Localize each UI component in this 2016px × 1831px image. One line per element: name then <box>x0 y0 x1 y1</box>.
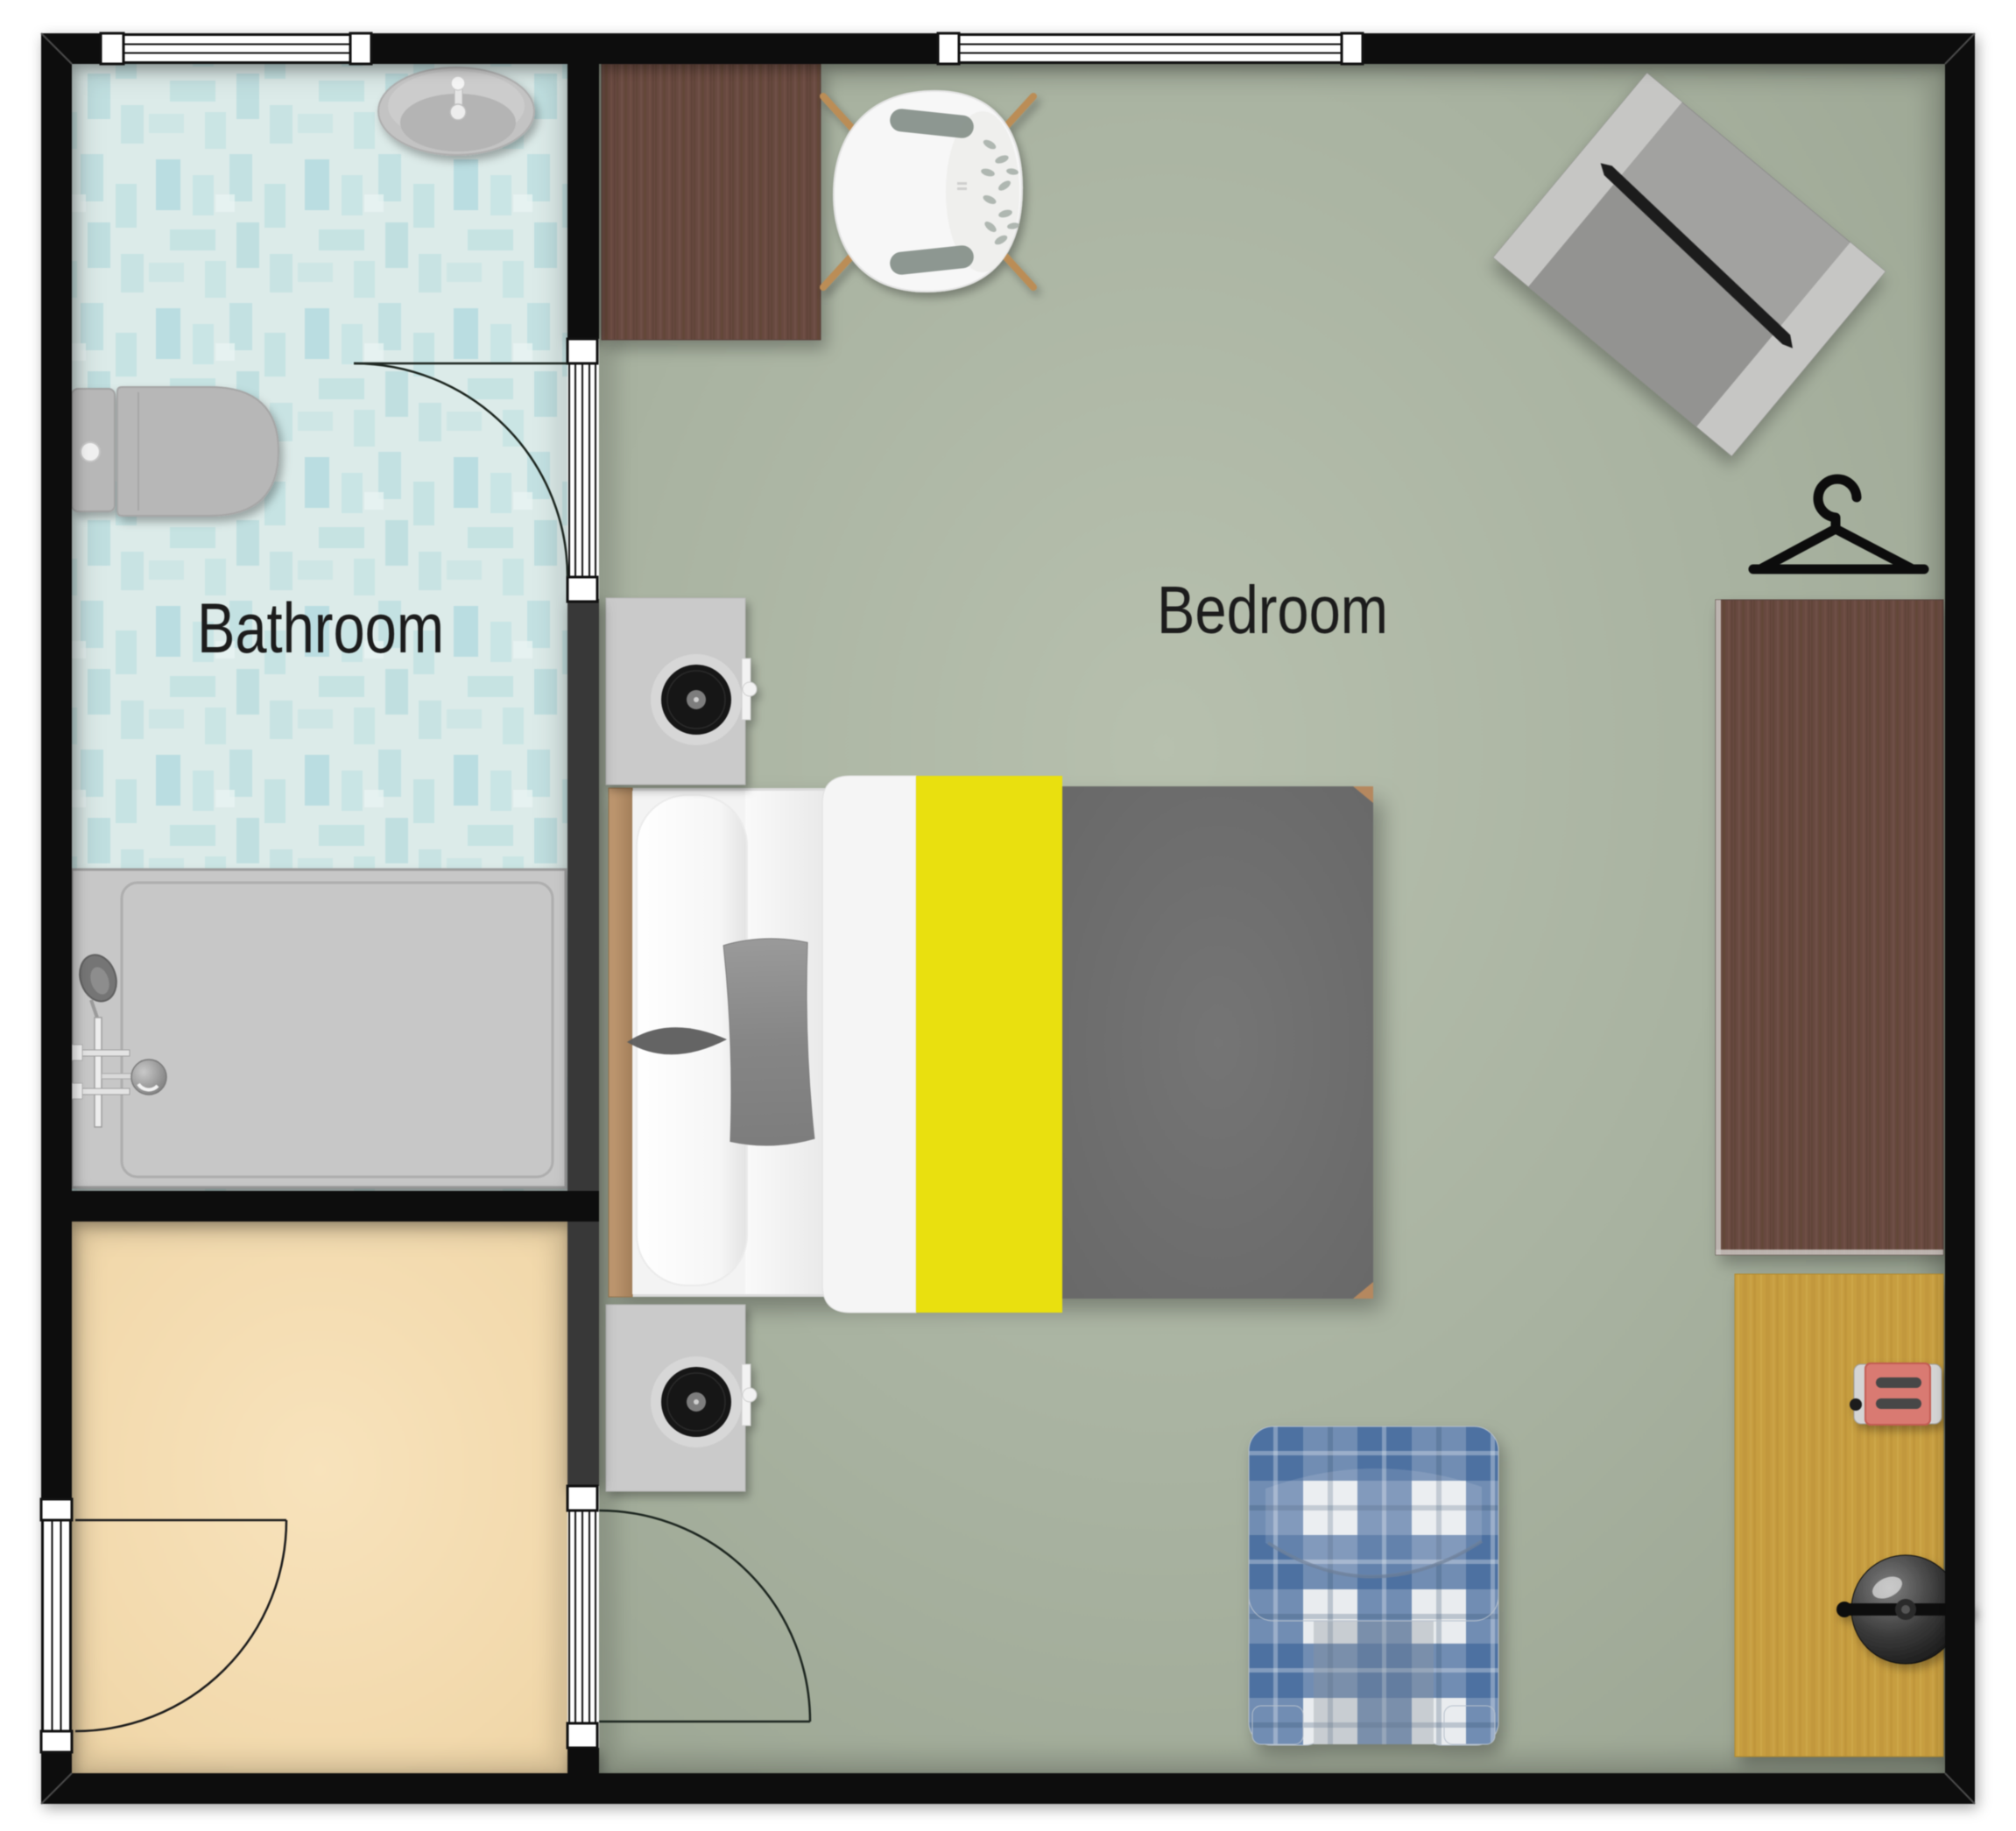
svg-text:Bathroom: Bathroom <box>197 589 444 668</box>
svg-text:Bedroom: Bedroom <box>1157 573 1388 648</box>
